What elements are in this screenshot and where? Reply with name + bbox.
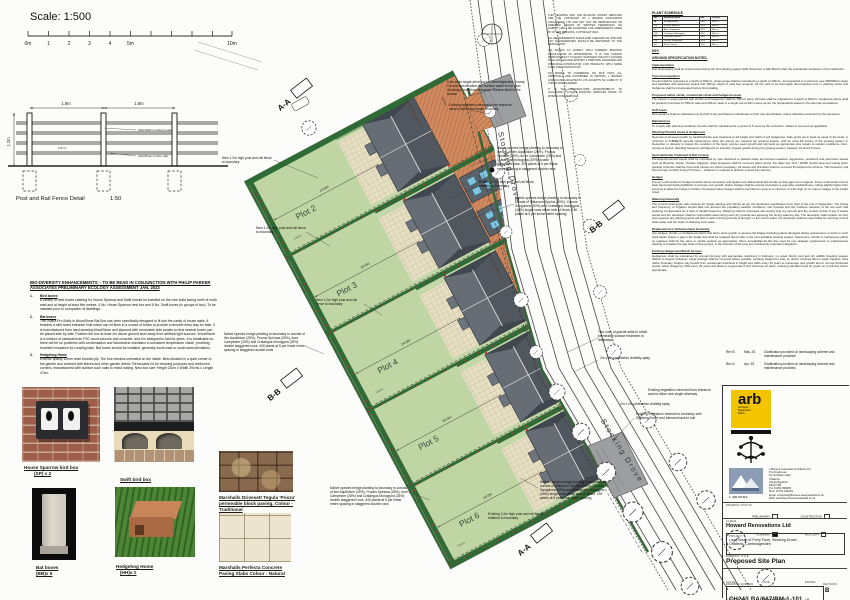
key-title: KEY [652, 49, 848, 53]
annotation: 3.6m wide single driveway to Cambridgesh… [447, 80, 525, 96]
bio-item-bird-boxes: 1. Bird boxes A variety of nest boxes ca… [30, 294, 217, 312]
note-body: The topsoil in areas planted with shrubs… [652, 98, 848, 105]
photo-hedgehog-home [115, 487, 195, 557]
project-section: PROJECT Land South of Ferry Farm, Stocki… [726, 533, 845, 555]
annotation: Native species hedge planting to boundar… [224, 332, 306, 353]
revision-value: B [825, 588, 829, 594]
scale-title: Scale: 1:500 [30, 11, 91, 23]
revision-id: Rev B [726, 350, 744, 358]
scale-tick: 3 [88, 41, 91, 47]
biodiversity-heading: BIO-DIVERSITY ENHANCEMENTS: - TO BE READ… [30, 280, 217, 291]
drawing-sheet: Scale: 1:500 0m 1 2 3 4 5m 10m [0, 0, 850, 600]
revision-row: Rev B May. 25 Clarification provided on … [726, 350, 848, 358]
annotation: Two rows of granite setts to retain perm… [598, 330, 656, 342]
fence-dim-span2: 1.8m [134, 101, 144, 106]
bio-item-number: 3. [30, 353, 40, 375]
fence-posts-label: 100x100mm timber posts [138, 128, 172, 132]
firm-name: L BEVENS [729, 495, 748, 499]
revision-desc: Clarification provided on landscaping sc… [764, 350, 848, 358]
note-body: Ground shall be prepared to a depth of 3… [652, 80, 848, 91]
disclaimer-paragraph: NO WORKS TO COMMENCE ON SITE UNTIL ALL A… [548, 72, 622, 85]
fence-caption: Post and Rail Fence Detail [16, 196, 85, 202]
copyright-disclaimer: THIS DRAWING AND THE BUILDING WORKS DEPI… [548, 14, 622, 100]
bio-item-title: Hedgehog Home [40, 353, 67, 357]
bio-item-bat-boxes: 2. Bat boxes The Vivara Pro Build-in Woo… [30, 315, 217, 350]
drawing-title-section: DRAWING TITLE Proposed Site Plan [726, 555, 785, 565]
scale-tick: 2 [68, 41, 71, 47]
plant-schedule-table: No.Botanical NameMixCentresIAIlex Aquifo… [652, 16, 728, 47]
biodiversity-notes: BIO-DIVERSITY ENHANCEMENTS: - TO BE READ… [30, 280, 217, 378]
note-body: Persistent/perennial weeds shall be cont… [652, 158, 848, 173]
annotation: 2m x 2m pedestrian visibility splay [620, 402, 670, 406]
section-bb-left: B-B [266, 387, 283, 403]
scale-tick: 10m [227, 41, 237, 47]
caption-swift: Swift bird box [120, 477, 190, 483]
ground-specification-notes: KEY GROUND SPECIFICATION NOTES. Implemen… [652, 49, 848, 273]
photo-tegula-paving [219, 451, 293, 492]
caption-sparrow: House Sparrow bird box(SP) x 2 [24, 465, 110, 477]
fence-scale: 1:50 [110, 196, 121, 202]
firm-address: L Bevens Associates Architects LtdThe Do… [769, 468, 824, 500]
fence-dim-height: 1.2m [6, 137, 11, 147]
photo-house-sparrow-box [22, 387, 100, 462]
bio-item-hedgehog-home: 3. Hedgehog Home Exterior quality 12mm r… [30, 353, 217, 375]
revision-label: REVISION [823, 583, 837, 586]
annotation: New 1.2m high post and rail fence to bou… [316, 298, 364, 306]
photo-perfecta-paving [219, 513, 291, 562]
revision-row: Rev A Apr. 25 Clarification provided on … [726, 362, 848, 370]
fence-dim-span1: 1.8m [61, 101, 71, 106]
revision-date: May. 25 [744, 350, 764, 358]
lbevens-logo [729, 468, 763, 494]
title-block: arb ArchitectsRegistrationBoard L BEVENS… [722, 385, 849, 598]
note-body: Removal of all weed growth by hand/herbi… [652, 136, 848, 151]
scale-tick: 0m [25, 41, 32, 47]
note-heading: Existing Hedgerows/Shrub Groups [652, 250, 848, 254]
annotation: New 1.2m high post and rail fence to bou… [256, 226, 306, 234]
scale-tick: 5m [127, 41, 134, 47]
plant-schedule-row: RCRosa Canina10%5/lin m [653, 43, 728, 47]
fence-dim-railgap: 0.27m [58, 146, 67, 150]
scale-tick: 1 [47, 41, 50, 47]
plant-schedule: PLANT SCHEDULE No.Botanical NameMixCentr… [652, 11, 728, 47]
section-aa-top: A-A [276, 97, 293, 113]
annotation: Existing 1.2m high post and rail fence r… [479, 180, 535, 188]
annotation: Native species hedge planting to boundar… [330, 486, 408, 507]
caption-hedgehog: Hedgehog Home(HH)x 1 [116, 564, 180, 576]
revision-id: Rev A [726, 362, 744, 370]
drawing-title: Proposed Site Plan [726, 558, 785, 565]
annotation: Native species hedge planting to boundar… [515, 196, 587, 217]
arb-logo-bar [731, 430, 771, 434]
annotation: Native species hedge planting to boundar… [540, 480, 606, 501]
bio-item-body: A variety of nest boxes catering for Hou… [40, 298, 217, 311]
bio-item-title: Bat boxes [40, 315, 56, 319]
drawing-number-box: CH24/LBA/667/RM-1-101 [726, 586, 824, 600]
note-body: Top-up mulch levels for hedge trenches w… [652, 181, 848, 196]
photo-swift-box [114, 387, 194, 462]
note-body: To comply with planning conditions the s… [652, 125, 848, 129]
scale-tick: 4 [109, 41, 112, 47]
annotation: Native species hedge planting to boundar… [497, 146, 563, 171]
client-name: Howard Renovations Ltd [726, 523, 791, 529]
note-heading: Hedges [652, 176, 848, 180]
note-body: New gardens shall be cultivated only and… [652, 113, 848, 117]
annotation: Existing 1.2m high post and rail fence r… [488, 512, 546, 520]
revision-table: Rev B May. 25 Clarification provided on … [726, 350, 848, 374]
bio-item-title: Bird boxes [40, 294, 58, 298]
note-body: Any hedges, shrubs, or herbaceous plants… [652, 232, 848, 247]
bio-item-number: 1. [30, 294, 40, 312]
annotation: New 1.2m high post and rail fence to bou… [222, 156, 274, 164]
note-body: The Council shall apply safe volumes for… [652, 203, 848, 225]
fence-detail: 1.8m 1.8m 1.2m 0.27m 100x100mm timber po… [6, 101, 228, 202]
disclaimer-paragraph: ALL WORKS TO COMPLY WITH CURRENT BUILDIN… [548, 49, 622, 69]
caption-bat: Bat boxes(BB)x 5 [36, 565, 86, 577]
annotation: Existing vegetation retained to boundary… [636, 412, 708, 420]
scale-bar: Scale: 1:500 0m 1 2 3 4 5m 10m [25, 11, 237, 47]
caption-tegula: Marshalls Drivesett Tegula 'Priora' perm… [219, 495, 299, 513]
caption-perfecta: Marshalls Perfecta Concrete Paving Slabs… [219, 565, 297, 577]
disclaimer-paragraph: THIS DRAWING AND THE BUILDING WORKS DEPI… [548, 14, 622, 34]
note-body: Hedgerows shall be maintained by annual … [652, 255, 848, 273]
revision-date: Apr. 25 [744, 362, 764, 370]
disclaimer-paragraph: IT IS THE CONTRACTORS RESPONSIBILITY TO … [548, 88, 622, 98]
bio-item-body: The Vivara Pro Build-in WoodStone Bat Bo… [40, 319, 215, 350]
bio-item-body: Exterior quality 12mm resin bonded ply. … [40, 357, 213, 374]
crest-logo [723, 436, 849, 466]
note-body: Soft landscaping shall be implemented du… [652, 68, 848, 72]
arb-logo: arb ArchitectsRegistrationBoard [731, 390, 771, 428]
client-section: CLIENT Howard Renovations Ltd [726, 520, 791, 529]
notes-title: GROUND SPECIFICATION NOTES. [652, 56, 848, 60]
fence-rails-label: 100x25mm timber rails [138, 154, 169, 158]
annotation: 2m x 2m pedestrian visibility splay [600, 356, 654, 360]
annotation: Existing vegetation removed from entranc… [648, 388, 712, 396]
section-aa-bottom: A-A [516, 542, 533, 558]
plant-schedule-title: PLANT SCHEDULE [652, 11, 728, 15]
revision-desc: Clarification provided on landscaping sc… [764, 362, 848, 370]
bio-item-number: 2. [30, 315, 40, 350]
photo-bat-box [32, 488, 76, 560]
disclaimer-paragraph: ALL MEASUREMENTS SHOULD BE CHECKED ON SI… [548, 37, 622, 47]
annotation: Existing vegetation removed from entranc… [449, 103, 513, 111]
